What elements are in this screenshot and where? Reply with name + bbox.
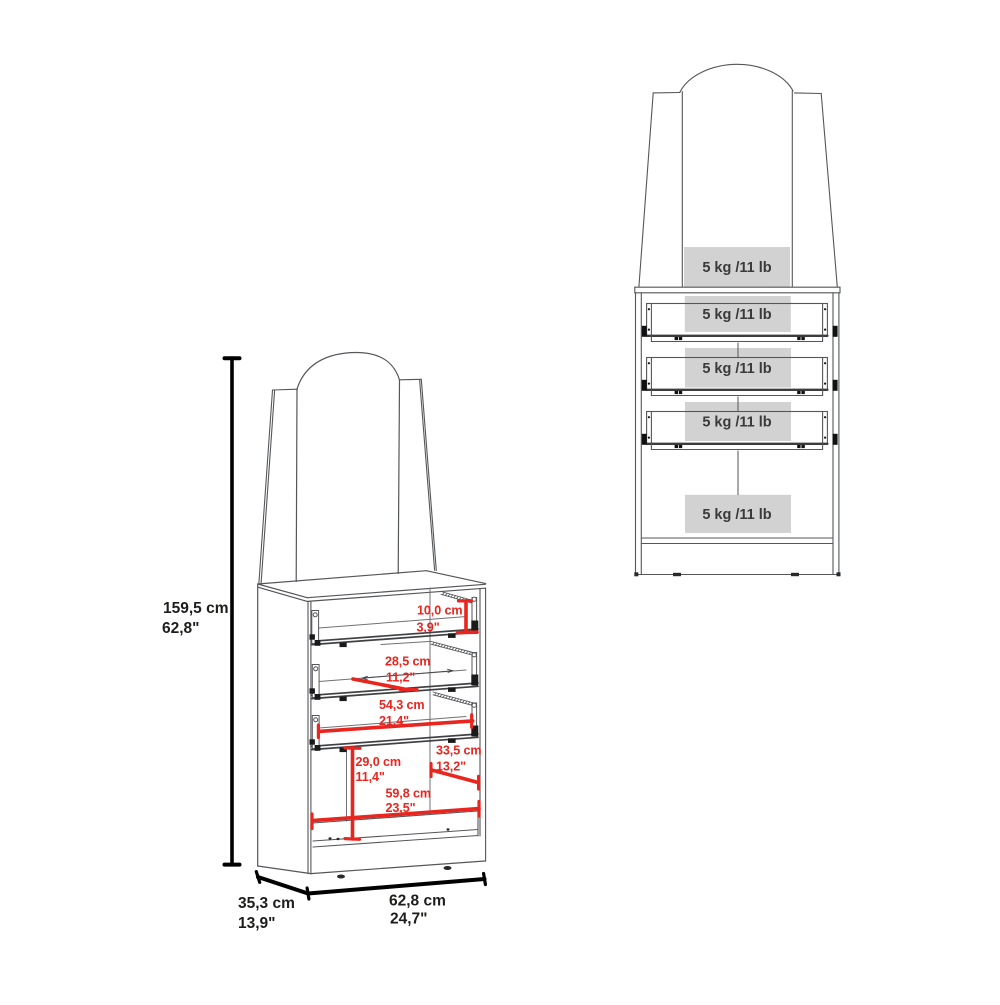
svg-text:5 kg /11 lb: 5 kg /11 lb	[702, 361, 771, 377]
svg-text:10,0 cm: 10,0 cm	[417, 604, 463, 618]
svg-text:59,8 cm: 59,8 cm	[386, 787, 432, 801]
svg-text:11,4": 11,4"	[356, 770, 385, 784]
svg-text:11,2": 11,2"	[386, 671, 415, 685]
svg-text:5 kg /11 lb: 5 kg /11 lb	[702, 307, 771, 323]
svg-text:13,2": 13,2"	[436, 760, 466, 774]
svg-text:5 kg /11 lb: 5 kg /11 lb	[702, 507, 771, 523]
svg-text:35,3 cm: 35,3 cm	[238, 895, 295, 912]
svg-text:159,5 cm: 159,5 cm	[163, 600, 229, 617]
svg-text:21,4": 21,4"	[379, 714, 409, 728]
svg-text:24,7": 24,7"	[390, 911, 428, 928]
svg-text:23,5": 23,5"	[386, 801, 416, 815]
svg-text:54,3 cm: 54,3 cm	[379, 698, 425, 712]
svg-text:13,9": 13,9"	[238, 915, 276, 932]
svg-text:62,8 cm: 62,8 cm	[389, 893, 446, 910]
svg-text:3,9": 3,9"	[417, 621, 440, 635]
svg-text:28,5 cm: 28,5 cm	[385, 655, 431, 669]
svg-text:33,5 cm: 33,5 cm	[436, 744, 482, 758]
svg-text:5 kg /11 lb: 5 kg /11 lb	[702, 415, 771, 431]
svg-text:62,8": 62,8"	[162, 620, 200, 637]
svg-text:29,0 cm: 29,0 cm	[356, 755, 402, 769]
svg-text:5 kg /11 lb: 5 kg /11 lb	[702, 260, 771, 276]
